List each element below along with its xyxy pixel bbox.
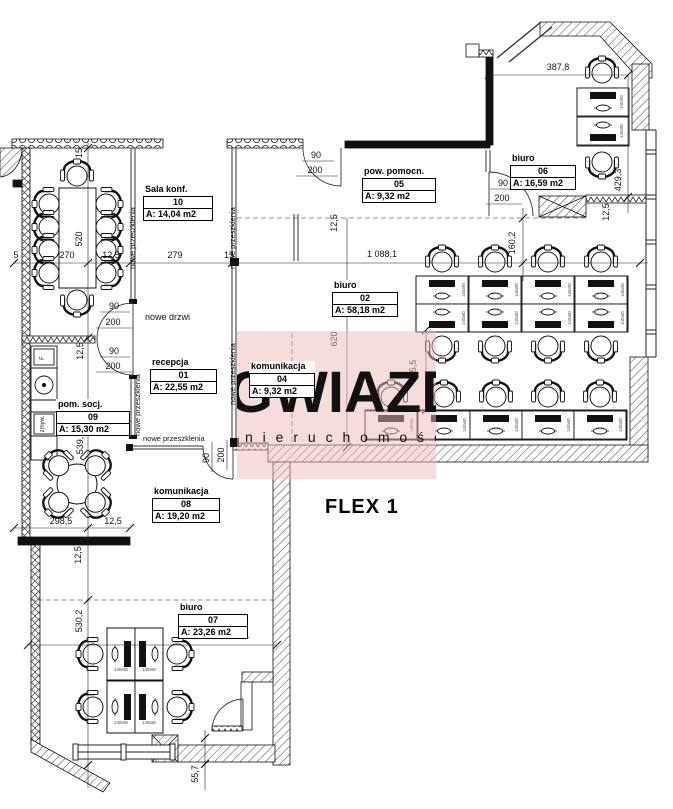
wall-detail <box>466 44 479 57</box>
glazed-facade-wall <box>12 139 163 148</box>
desk-groups-biuro07 <box>76 628 194 733</box>
desk-size-label: 140x80 <box>620 310 625 324</box>
door-threshold <box>212 726 242 731</box>
room-area: A: 15,30 m2 <box>57 424 129 435</box>
room-area: A: 23,26 m2 <box>179 627 247 638</box>
room-label-08: komunikacja 08 A: 19,20 m2 <box>152 486 220 523</box>
dim-298-5: 298,5 <box>50 516 73 526</box>
dim-55-7: 55,7 <box>190 765 200 783</box>
partition-biuro06 <box>486 150 490 172</box>
door4-height: 200 <box>105 361 120 371</box>
door3-height: 200 <box>105 317 120 327</box>
watermark-subtitle: n i e r u c h o m o ś c i <box>245 429 457 445</box>
right-wall-upper <box>632 64 649 130</box>
new-glazing-note-v3: nowe przeszklenia <box>228 206 237 269</box>
room-label-06: biuro 06 A: 16,59 m2 <box>510 153 576 190</box>
desk-size-label: 140x80 <box>514 282 519 296</box>
new-glazing-note-h: nowe przeszklenia <box>143 434 206 443</box>
room-label-04: komunikacja 04 A: 9,32 m2 <box>249 361 315 398</box>
desk-size-label: 140x80 <box>514 310 519 324</box>
new-glazing-note-v1: nowe przeszklenia <box>128 206 137 269</box>
room-area: A: 58,18 m2 <box>333 305 397 316</box>
partition-kom08 <box>128 446 203 449</box>
top-black-wall <box>345 141 490 148</box>
door2-height: 200 <box>494 193 509 203</box>
room-name: biuro <box>178 602 248 614</box>
fridge-label: F <box>40 356 46 360</box>
dim-12-5-c: 12,5 <box>75 342 85 360</box>
right-wall-lower <box>630 357 648 457</box>
room-name: recepcja <box>150 357 217 369</box>
kitchen-counter <box>31 346 57 460</box>
room-name: pom. socj. <box>56 399 130 411</box>
vertical-black-wall <box>486 55 493 145</box>
dim-520: 520 <box>74 231 84 246</box>
room-name: komunikacja <box>152 486 220 498</box>
bottom-wall-biuro07 <box>178 745 275 762</box>
desk-size-label: 140x80 <box>461 282 466 296</box>
door2-width: 90 <box>498 178 508 188</box>
glazed-facade-wall <box>227 139 303 148</box>
room-number: 07 <box>179 615 247 627</box>
room-number: 01 <box>151 370 216 382</box>
room-area: A: 9,32 m2 <box>250 386 314 397</box>
pomsocj-bottom-wall <box>18 537 130 545</box>
dim-429-3: 429,3 <box>613 169 623 192</box>
door1-width: 90 <box>311 150 321 160</box>
room-area: A: 9,32 m2 <box>363 191 435 202</box>
dishwasher-label: zmyw. <box>40 415 46 432</box>
door-lintel <box>242 672 273 682</box>
desk-size-label: 140x80 <box>567 310 572 324</box>
room-number: 04 <box>250 374 314 386</box>
door4-width: 90 <box>109 346 119 356</box>
dim-279: 279 <box>167 250 182 260</box>
desk-size-label: 140x80 <box>620 282 625 296</box>
new-glazing-note-v4: nowe przeszklenia <box>228 342 237 405</box>
dim-270: 270 <box>59 250 74 260</box>
room-area: A: 16,59 m2 <box>511 178 575 189</box>
room-number: 06 <box>511 166 575 178</box>
dim-160-2: 160,2 <box>507 232 517 255</box>
middle-vertical-wall <box>273 462 290 765</box>
desk-group-biuro06 <box>577 56 629 179</box>
desk-size-label: 140x80 <box>567 282 572 296</box>
dim-12-5-e: 12,5 <box>73 546 83 564</box>
shaft-box <box>539 196 586 217</box>
desk-size-label: 140x80 <box>114 720 128 725</box>
desk-size-label: 140x80 <box>514 417 519 431</box>
dim-12-5-b: 12,5 <box>329 214 339 232</box>
desk-size-label: 140x80 <box>142 720 156 725</box>
new-door-note: nowe drzwi <box>145 312 190 322</box>
unit-title: FLEX 1 <box>325 496 399 519</box>
door1-height: 200 <box>307 165 322 175</box>
dim-5: 5 <box>13 250 18 260</box>
door3-width: 90 <box>109 301 119 311</box>
desk-size-label: 140x80 <box>619 94 624 108</box>
door5-height: 200 <box>216 447 226 462</box>
desk-size-label: 140x80 <box>114 667 128 672</box>
door5-width: 90 <box>201 453 211 463</box>
partition-powpomocn <box>294 214 298 261</box>
dim-1088-1: 1 088,1 <box>367 249 397 259</box>
room-number: 08 <box>153 499 219 511</box>
dim-12-5-a: 12,5 <box>102 250 120 260</box>
room-label-02: biuro 02 A: 58,18 m2 <box>332 280 398 317</box>
room-label-09: pom. socj. 09 A: 15,30 m2 <box>56 399 130 436</box>
room-number: 05 <box>363 179 435 191</box>
room-label-07: biuro 07 A: 23,26 m2 <box>178 602 248 639</box>
room-number: 09 <box>57 412 129 424</box>
desk-size-label: 140x80 <box>566 417 571 431</box>
desk-size-label: 140x80 <box>618 417 623 431</box>
room-number: 02 <box>333 293 397 305</box>
room-name: biuro <box>510 153 576 165</box>
desk-size-label: 140x80 <box>142 667 156 672</box>
room-number: 10 <box>144 197 212 209</box>
desk-size-label: 140x80 <box>462 417 467 431</box>
room-name: Sala konf. <box>143 184 213 196</box>
room-name: pow. pomocn. <box>362 166 436 178</box>
room-label-05: pow. pomocn. 05 A: 9,32 m2 <box>362 166 436 203</box>
new-glazing-note-v2: nowe przeszklenia <box>133 373 142 436</box>
floorplan-page: 387,8 429,3 12,5 160,2 1 088,1 5 270 12,… <box>0 0 673 809</box>
dim-15-b: 15 <box>74 148 84 158</box>
dim-387-8: 387,8 <box>547 62 570 72</box>
bottom-window <box>73 744 175 760</box>
room-name: komunikacja <box>249 361 315 373</box>
thin-wall-biuro06 <box>586 195 646 203</box>
desk-size-label: 140x80 <box>461 310 466 324</box>
threshold <box>479 50 493 57</box>
wall-stub <box>13 180 22 187</box>
dim-12-5-right: 12,5 <box>601 203 611 221</box>
corner-column <box>0 148 22 177</box>
room-area: A: 14,04 m2 <box>144 209 212 220</box>
desk-size-label: 140x80 <box>619 123 624 137</box>
room-name: biuro <box>332 280 398 292</box>
room-label-01: recepcja 01 A: 22,55 m2 <box>150 357 217 394</box>
dim-12-5-d: 12,5 <box>104 516 122 526</box>
room-area: A: 19,20 m2 <box>153 511 219 522</box>
room-label-10: Sala konf. 10 A: 14,04 m2 <box>143 184 213 221</box>
dim-530-2: 530,2 <box>74 610 84 633</box>
room-area: A: 22,55 m2 <box>151 382 216 393</box>
